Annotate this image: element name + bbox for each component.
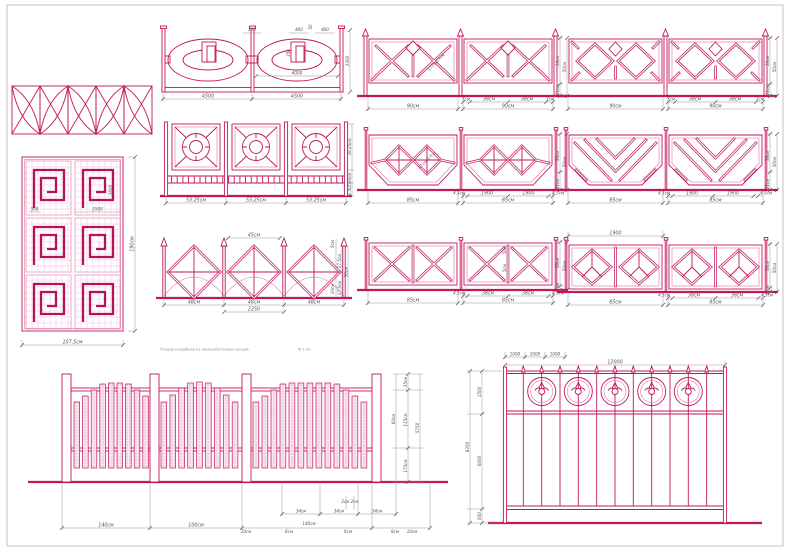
dim-label: 50см [772,157,777,168]
dim-label: 11см [765,85,770,96]
dim-label: 50см [562,157,567,168]
dim-label: 1900 [481,191,493,197]
dim-label: 38см [555,258,560,269]
dim-label: 90см [609,104,622,110]
plank-section-1 [74,383,148,468]
dim-label: 90см [709,104,722,110]
dim-label: 50см [772,62,777,73]
dim-label: 50см [562,62,567,73]
dim-label: 50см [772,263,777,274]
dim-label: 38см [731,293,744,299]
dim-label: 107.5см [63,340,83,346]
dim-label: 38см [688,293,701,299]
dim-label: 38см [765,151,770,162]
dim-label: 4.5см [453,291,465,296]
dim-label: 53.25см [246,198,266,204]
dim-label: 34см [296,509,307,514]
dim-label: 85см [609,300,622,306]
dim-label: 500 [31,207,39,212]
dim-label: 11см [555,179,560,190]
dim-label: 2500 [92,207,103,212]
dim-label: 400 [321,27,329,32]
dim-label: 90см [502,104,515,110]
dim-label: 8см [391,529,399,534]
dim-label: 200 [248,27,256,32]
dim-label: 38см [482,291,495,297]
dim-label: 7см [756,97,764,102]
dim-label: 27.5см [337,254,342,268]
sheet-scale: М 1:10 [298,348,311,352]
dim-label: 140см [302,521,315,526]
dim-label: 85см [609,198,622,204]
dim-label: 2300 [345,55,350,66]
dim-label: 4.5см [760,191,772,196]
dim-label: 12.50см [347,181,352,198]
dim-label: 38см [689,97,702,103]
dim-label: 85см [502,298,515,304]
dim-label: 48см [188,300,201,306]
dim-label: 6см [285,529,293,534]
dim-label: 1900 [686,191,698,197]
dim-label: 7см [546,97,554,102]
dim-label: 85см [709,198,722,204]
dim-label: 1000 [530,352,541,357]
dim-label: 85см [709,300,722,306]
dim-label: 34см [372,509,383,514]
dim-label: 850 [477,512,482,520]
dim-label: 38см [555,56,560,67]
dim-label: 50см [562,261,567,272]
dim-label: 35см [403,377,408,388]
dim-label: 1900 [522,191,534,197]
fence-drawing-canvas: 500 2500 3600 107.5см 190см 200 400 50 4… [0,0,790,558]
dim-label: 53.25см [306,198,326,204]
dim-label: 11см [765,179,770,190]
dim-label: 175см [403,459,408,472]
dim-label: 350 [286,49,291,57]
dim-label: 38см [521,97,534,103]
dim-label: 5см [330,240,335,248]
dim-label: 48см [308,300,321,306]
dim-label: 190см [130,236,136,252]
dim-label: 5см [502,264,507,272]
dim-label: 6000 [477,455,482,466]
dim-label: 115см [403,413,408,426]
dim-label: 100см [188,523,204,529]
dim-label: 50см [344,267,349,278]
dim-label: 11см [765,285,770,296]
dim-label: 85см [407,198,420,204]
dim-label: 5см [502,246,507,254]
dim-label: 1900 [727,191,739,197]
dim-label: 90см [407,104,420,110]
dim-label: 1000 [550,352,561,357]
dim-label: 53.25см [186,198,206,204]
dim-label: 5750 [415,422,420,433]
dim-label: 39.25см [347,138,352,155]
dim-label: 6см [347,173,352,181]
dim-label: 12000 [607,360,622,366]
dim-label: 1000 [510,352,521,357]
dim-label: 4.5см [552,191,564,196]
dim-label: 38см [729,97,742,103]
dim-label: 400 [295,27,303,32]
dim-label: 38см [483,97,496,103]
plank-section-2 [161,382,238,468]
dim-label: 10см [330,284,335,295]
dim-label: 60см [391,414,396,425]
dim-label: 4.5см [658,191,670,196]
dim-label: 10см [407,529,418,534]
dim-label: 11см [555,85,560,96]
dim-label: 34см [334,509,345,514]
dim-label: 45см [248,233,261,239]
dim-label: 4500 [202,94,214,100]
dim-label: 7см [462,97,470,102]
dim-label: 85см [502,198,515,204]
dim-label: 4000 [292,71,303,76]
dim-label: 7см [667,97,675,102]
dim-label: 38см [765,56,770,67]
dim-label: 2250 [248,307,260,313]
dim-label: 38см [522,291,535,297]
dim-label: 6см [344,529,352,534]
dim-label: 48см [248,300,261,306]
dim-label: 17.5см [337,281,342,295]
dim-label: 2см 2см [341,499,358,504]
dim-label: 4.5см [453,191,465,196]
dim-label: 38см [765,261,770,272]
dim-label: 1500 [477,386,482,397]
dim-label: 4.5см [658,293,670,298]
dim-label: 8350 [465,441,470,452]
dim-label: 1900 [609,231,621,237]
dim-label: 50 [308,24,313,30]
sheet-caption: Ограда усадебная из железобетонных секци… [160,348,249,352]
drawing-sheet: 500 2500 3600 107.5см 190см 200 400 50 4… [0,0,790,558]
dim-label: 38см [555,151,560,162]
dim-label: 4500 [291,94,303,100]
dim-label: 10см [241,529,252,534]
dim-label: 85см [407,298,420,304]
dim-label: 3600 [108,184,113,195]
dim-label: 140см [98,523,114,529]
